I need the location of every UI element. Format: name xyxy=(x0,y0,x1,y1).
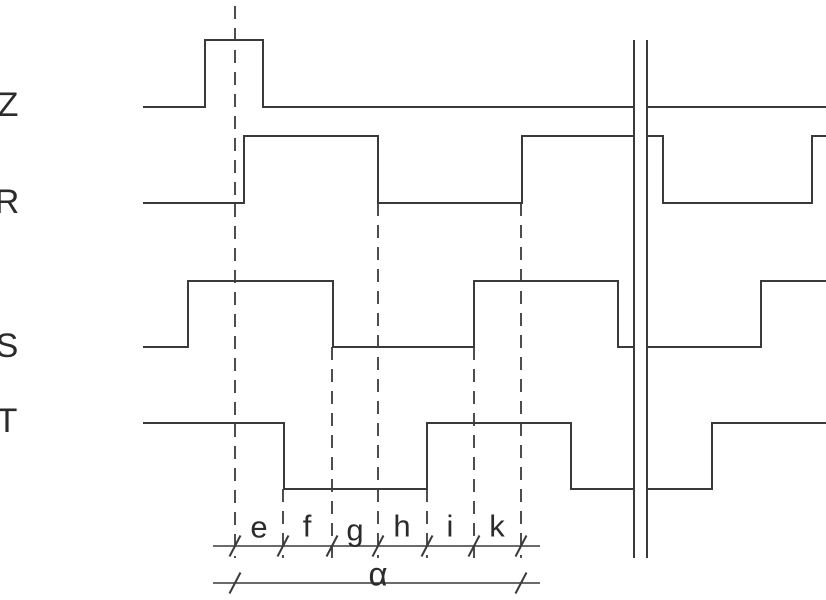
interval-label-e: e xyxy=(250,512,267,543)
waveform-r xyxy=(143,136,633,203)
signal-label-r: R xyxy=(0,185,19,219)
signal-label-t: T xyxy=(0,404,17,438)
waveform-s xyxy=(143,281,633,347)
interval-label-i: i xyxy=(447,511,454,542)
interval-label-g: g xyxy=(346,515,363,546)
signal-label-s: S xyxy=(0,329,18,363)
waveform-canvas xyxy=(0,0,826,600)
interval-label-h: h xyxy=(393,511,410,542)
waveform-s xyxy=(648,281,826,347)
interval-label-k: k xyxy=(489,511,505,542)
waveform-t xyxy=(648,423,826,489)
total-period-label-alpha: α xyxy=(368,558,387,591)
waveform-t xyxy=(143,423,633,489)
signal-label-z: Z xyxy=(0,88,18,122)
waveform-z xyxy=(143,40,633,107)
interval-label-f: f xyxy=(303,511,312,542)
timing-diagram: Z R S T e f g h i k α xyxy=(0,0,826,600)
waveform-r xyxy=(648,136,826,203)
